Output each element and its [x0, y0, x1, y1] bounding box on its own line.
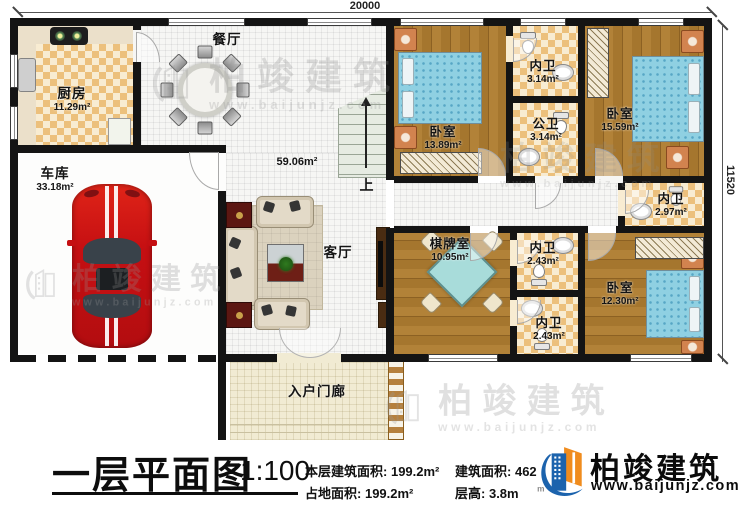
- room-area: 2.97m²: [631, 207, 711, 218]
- car-mirror: [67, 240, 76, 246]
- dining-chair: [237, 83, 250, 98]
- room-label-ensuite2: 内卫 2.97m²: [631, 193, 711, 218]
- dining-table: [178, 63, 232, 117]
- stat-total-area: 建筑面积: 462: [455, 461, 537, 480]
- brand-url: www.baijunjz.com: [591, 478, 740, 494]
- side-table: [226, 202, 252, 228]
- room-area: 2.43m²: [503, 256, 583, 267]
- stat-land-area: 占地面积: 199.2m²: [305, 483, 413, 502]
- room-area: 13.89m²: [403, 140, 483, 151]
- watermark-url: www.baijunjz.com: [438, 419, 615, 433]
- dimension-tick: [718, 19, 729, 30]
- plant: [279, 257, 293, 271]
- room-name: 卧室: [580, 108, 660, 122]
- window: [168, 18, 245, 26]
- dimension-tick: [718, 353, 729, 364]
- stat-value: 199.2m²: [365, 486, 413, 501]
- room-name: 卧室: [403, 126, 483, 140]
- room-name: 公卫: [506, 118, 586, 132]
- pillow: [688, 63, 700, 95]
- room-label-bedroom3: 卧室 12.30m²: [580, 282, 660, 307]
- room-area: 12.30m²: [580, 296, 660, 307]
- nightstand: [666, 146, 689, 169]
- ensuite1-door-gap: [506, 36, 513, 62]
- room-label-bedroom1: 卧室 13.89m²: [403, 126, 483, 151]
- dimension-line-right: [722, 26, 723, 362]
- pillow: [689, 276, 700, 301]
- title-underline: [52, 492, 298, 495]
- porch-side-steps: [388, 354, 404, 440]
- car-mirror: [148, 240, 157, 246]
- up-text: 上: [354, 178, 380, 193]
- plan-scale: 1:100: [240, 455, 310, 487]
- room-name: 内卫: [503, 242, 583, 256]
- wall-bath-divider: [506, 96, 578, 103]
- floor-plan-canvas: 厨房 11.29m² 餐厅 车库 33.18m² 59.06m² 客厅 上 卧室…: [0, 0, 750, 508]
- room-name: 厨房: [32, 87, 112, 102]
- sink-public-bath: [518, 148, 540, 166]
- window: [10, 106, 18, 140]
- side-table: [226, 302, 252, 328]
- window: [630, 354, 692, 362]
- window: [520, 18, 566, 26]
- room-area: 59.06m²: [257, 156, 337, 168]
- room-area: 33.18m²: [15, 182, 95, 193]
- brand-logo-icon: m: [536, 442, 586, 505]
- tv: [378, 241, 383, 287]
- bedroom2-door-gap: [595, 176, 623, 183]
- room-label-living: 客厅: [298, 246, 378, 261]
- room-name: 内卫: [631, 193, 711, 207]
- room-label-garage: 车库 33.18m²: [15, 167, 95, 193]
- window: [428, 354, 498, 362]
- sofa-left: [224, 226, 258, 306]
- wardrobe-bedroom1: [400, 152, 482, 174]
- sofa-pillow: [285, 305, 297, 317]
- plan-title: 一层平面图: [52, 444, 252, 499]
- stat-value: 462: [515, 464, 537, 479]
- wardrobe-bedroom3: [635, 237, 704, 259]
- room-name: 棋牌室: [410, 238, 490, 252]
- stat-label: 本层建筑面积:: [305, 464, 387, 479]
- garage-door-gap: [218, 153, 226, 191]
- stat-floor-height: 层高: 3.8m: [455, 483, 519, 502]
- wall-center-lower: [386, 228, 394, 354]
- stairs-up-arrow: [365, 100, 367, 168]
- window: [400, 18, 484, 26]
- room-name: 餐厅: [187, 33, 267, 48]
- stat-value: 3.8m: [489, 486, 519, 501]
- window: [638, 18, 684, 26]
- wall-bath-bedroom2: [578, 26, 585, 183]
- wall-corridor-bottom-a: [394, 226, 470, 233]
- bed-bedroom1: [398, 52, 482, 124]
- pillow: [402, 58, 414, 85]
- room-label-dining: 餐厅: [187, 33, 267, 48]
- stove-burner: [72, 31, 82, 41]
- porch-floor: [230, 362, 388, 440]
- porch-step-line: [230, 424, 388, 425]
- watermark-name: 柏竣建筑: [438, 383, 615, 417]
- stat-floor-area: 本层建筑面积: 199.2m²: [305, 461, 439, 480]
- car-rear-window: [83, 294, 141, 318]
- room-name: 内卫: [509, 317, 589, 331]
- window: [307, 18, 372, 26]
- nightstand: [681, 30, 704, 53]
- public-bath-door-gap: [535, 176, 563, 183]
- pillow: [689, 307, 700, 332]
- open-area-label: 59.06m²: [257, 156, 337, 168]
- room-area: 15.59m²: [580, 122, 660, 133]
- pillow: [402, 91, 414, 118]
- dimension-top-value: 20000: [340, 0, 390, 12]
- ensuite2-door-gap: [618, 190, 625, 216]
- room-label-bedroom2: 卧室 15.59m²: [580, 108, 660, 133]
- room-label-porch: 入户门廊: [277, 385, 357, 400]
- stat-label: 建筑面积:: [455, 464, 511, 479]
- watermark: 柏竣建筑 www.baijunjz.com: [382, 382, 615, 434]
- porch-step-line: [230, 432, 388, 433]
- stairs-up-label: 上: [354, 178, 380, 193]
- pillow: [688, 101, 700, 133]
- room-area: 11.29m²: [32, 102, 112, 113]
- room-area: 3.14m²: [503, 74, 583, 85]
- wall-center-upper: [386, 26, 394, 180]
- wall-corridor-bottom-b: [498, 226, 588, 233]
- room-label-ensuite1: 内卫 3.14m²: [503, 60, 583, 85]
- garage-door-dashed-line: [18, 355, 218, 362]
- stove: [50, 27, 88, 45]
- dimension-line-top: [18, 12, 712, 13]
- dimension-right-value: 11520: [724, 165, 736, 195]
- wardrobe-bedroom2: [587, 28, 609, 98]
- room-name: 卧室: [580, 282, 660, 296]
- wall-right: [704, 18, 712, 362]
- room-name: 入户门廊: [277, 385, 357, 400]
- fridge: [108, 118, 131, 145]
- room-area: 10.95m²: [410, 252, 490, 263]
- stat-label: 占地面积:: [305, 486, 361, 501]
- room-name: 客厅: [298, 246, 378, 261]
- wall-corridor-top-a: [394, 176, 478, 183]
- room-area: 3.14m²: [506, 132, 586, 143]
- svg-text:m: m: [537, 485, 544, 494]
- nightstand: [394, 28, 417, 51]
- room-label-chess-room: 棋牌室 10.95m²: [410, 238, 490, 263]
- wall-ensuite34-divider: [510, 290, 585, 297]
- nightstand: [681, 340, 704, 354]
- room-label-ensuite4: 内卫 2.43m²: [509, 317, 589, 342]
- room-name: 内卫: [503, 60, 583, 74]
- wall-corridor-bottom-c: [616, 226, 712, 233]
- car-windshield: [83, 238, 141, 264]
- car-top-view: [72, 184, 152, 348]
- stat-label: 层高:: [455, 486, 485, 501]
- room-label-ensuite3: 内卫 2.43m²: [503, 242, 583, 267]
- dining-chair: [198, 122, 213, 135]
- car-sunroof: [96, 268, 128, 290]
- stove-burner: [55, 31, 65, 41]
- window: [10, 54, 18, 88]
- stat-value: 199.2m²: [391, 464, 439, 479]
- room-area: 2.43m²: [509, 331, 589, 342]
- room-name: 车库: [15, 167, 95, 182]
- dining-chair: [161, 83, 174, 98]
- room-label-public-bath: 公卫 3.14m²: [506, 118, 586, 143]
- room-label-kitchen: 厨房 11.29m²: [32, 87, 112, 113]
- watermark-text-block: 柏竣建筑 www.baijunjz.com: [438, 383, 615, 433]
